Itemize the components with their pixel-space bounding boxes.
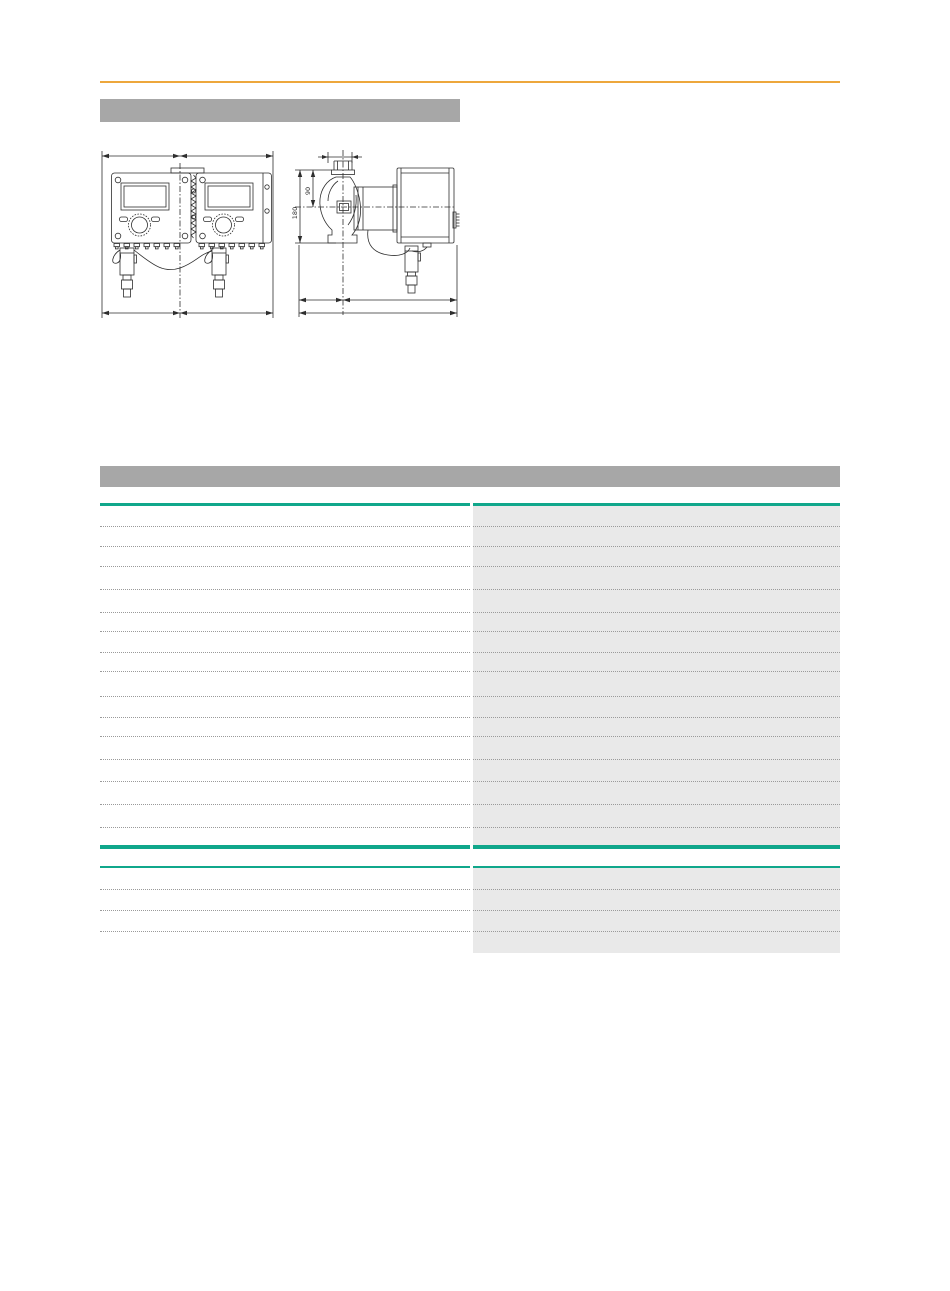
spec-row — [473, 697, 840, 718]
control-box — [397, 168, 460, 247]
button — [236, 217, 244, 222]
spec-row-filler — [473, 932, 840, 953]
cable — [134, 250, 212, 270]
spec-row — [473, 868, 840, 890]
spec-row — [100, 805, 470, 828]
spec-row — [473, 590, 840, 613]
plug-left — [120, 248, 137, 297]
pump-side-view-drawing: 180 90 — [290, 147, 465, 322]
spec-row — [100, 760, 470, 782]
spec-table-section1-right-column — [473, 503, 840, 845]
top-gold-rule — [100, 81, 840, 83]
spec-row — [100, 697, 470, 718]
spec-row — [473, 890, 840, 911]
dim-label-total-height: 180 — [291, 207, 299, 219]
cable — [113, 250, 121, 263]
spec-row — [473, 547, 840, 567]
dimension-90: 90 — [304, 170, 315, 207]
spec-row — [473, 737, 840, 760]
control-module-left — [112, 173, 192, 243]
spec-row — [473, 782, 840, 805]
button — [120, 217, 128, 222]
spec-row — [473, 718, 840, 737]
dim-label-center-height: 90 — [304, 187, 312, 195]
module-bridge — [171, 168, 204, 173]
spec-row — [100, 506, 470, 527]
button — [204, 217, 212, 222]
dimension-line-top — [102, 154, 273, 158]
front-view-linework — [102, 151, 273, 318]
display — [205, 183, 253, 210]
spec-row — [473, 828, 840, 845]
spec-row — [100, 590, 470, 613]
spec-row — [100, 782, 470, 805]
spec-row — [100, 718, 470, 737]
button — [152, 217, 160, 222]
dimension-180: 180 — [291, 170, 302, 243]
pump-front-view-drawing — [95, 147, 280, 322]
spec-row — [473, 567, 840, 590]
section-separator-rule — [100, 845, 470, 849]
dimension-line-bottom-2 — [299, 311, 457, 315]
cable-glands — [114, 244, 265, 249]
side-view-linework: 180 90 — [291, 150, 460, 317]
spec-row — [100, 613, 470, 632]
spec-row — [100, 828, 470, 845]
spec-row — [100, 737, 470, 760]
spec-row — [100, 911, 470, 932]
dimension-line-bottom — [102, 311, 273, 315]
display — [121, 183, 169, 210]
spec-row — [100, 890, 470, 911]
module-joint — [191, 175, 196, 238]
pump-housing — [320, 161, 361, 243]
spec-row — [473, 613, 840, 632]
spec-row — [473, 632, 840, 653]
spec-row — [473, 760, 840, 782]
spec-row — [473, 527, 840, 547]
datasheet-page: { "page": { "background": "#ffffff" }, "… — [0, 0, 950, 1291]
spec-row — [100, 567, 470, 590]
spec-row — [473, 911, 840, 932]
spec-row — [100, 653, 470, 672]
spec-row — [100, 672, 470, 697]
plug-right — [212, 248, 229, 297]
section-separator-rule — [473, 845, 840, 849]
spec-row — [100, 632, 470, 653]
page-title-bar — [100, 99, 460, 122]
spec-table-section2-left-column — [100, 866, 470, 932]
section-header-bar — [100, 466, 840, 487]
spec-row — [473, 805, 840, 828]
spec-row — [100, 868, 470, 890]
spec-row — [473, 672, 840, 697]
spec-row — [473, 653, 840, 672]
spec-row — [100, 527, 470, 547]
spec-table-section2-right-column — [473, 866, 840, 953]
spec-row — [100, 547, 470, 567]
plug — [405, 246, 421, 293]
spec-table-section1-left-column — [100, 503, 470, 845]
dimension-line-bottom-1 — [299, 298, 457, 302]
control-module-right — [196, 173, 272, 243]
spec-row — [473, 506, 840, 527]
